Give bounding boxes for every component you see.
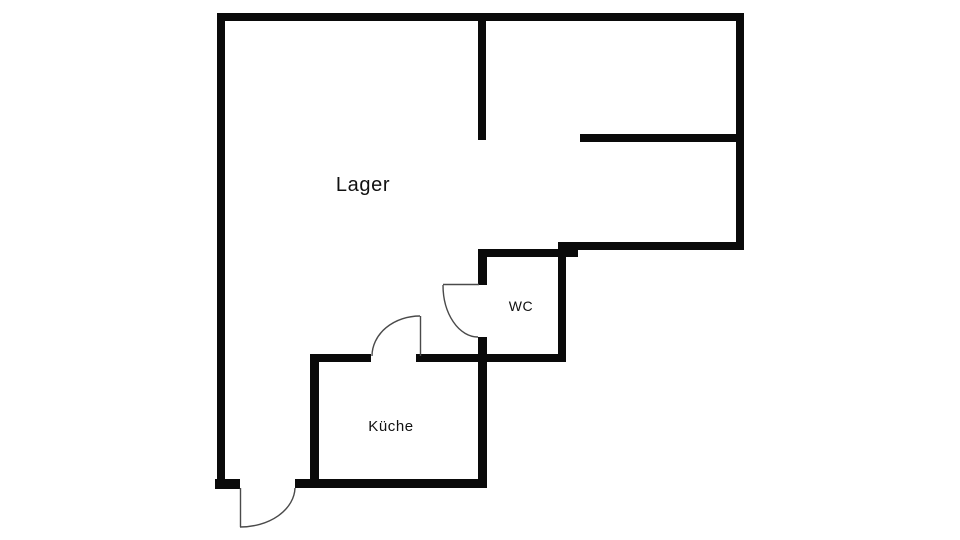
wall-wc-left-upper-stub: [478, 249, 487, 285]
kitchen-door: [372, 316, 421, 356]
floor-plan-canvas: Lager WC Küche: [0, 0, 960, 540]
wall-bottom-left-stub: [215, 479, 240, 489]
wall-topright-divider: [580, 134, 744, 142]
floor-plan-drawing: Lager WC Küche: [0, 0, 960, 540]
walls: [215, 13, 744, 489]
wall-kueche-top-right-wc-bottom: [416, 354, 566, 362]
doors: [240, 285, 479, 528]
wc-door-arc: [443, 285, 478, 337]
room-labels: Lager WC Küche: [336, 174, 533, 435]
wall-kueche-top-left: [310, 354, 371, 362]
wall-kueche-left: [310, 354, 319, 488]
room-label-kueche: Küche: [368, 418, 414, 435]
wall-kueche-right: [478, 337, 487, 488]
wall-wc-right: [558, 242, 566, 362]
kitchen-door-arc: [372, 316, 420, 356]
wall-bottom-right: [295, 479, 486, 488]
wall-step-horizontal: [558, 242, 744, 250]
room-label-lager: Lager: [336, 174, 390, 196]
room-label-wc: WC: [509, 298, 534, 314]
wall-right-outer: [736, 13, 744, 250]
entrance-door-arc: [240, 488, 295, 527]
wc-door: [443, 285, 479, 338]
entrance-door: [240, 488, 295, 527]
wall-left-outer: [217, 13, 225, 488]
wall-lager-right: [478, 13, 486, 140]
